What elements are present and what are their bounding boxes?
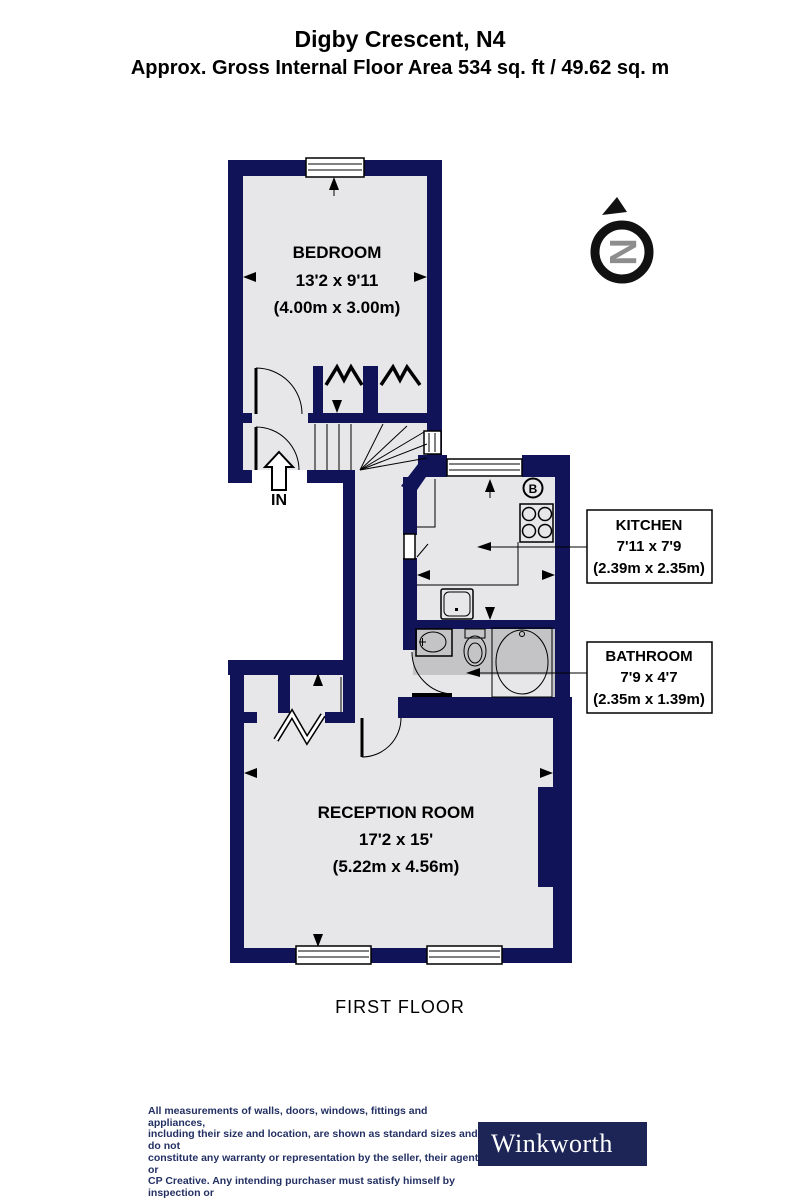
bathroom-name: BATHROOM: [605, 648, 692, 665]
disclaimer-line: including their size and location, are s…: [148, 1129, 483, 1152]
bedroom-name: BEDROOM: [293, 243, 382, 262]
boiler-label: B: [529, 482, 538, 496]
chimney-breast: [538, 787, 572, 887]
floor-plan-drawing: B: [0, 0, 800, 1200]
disclaimer-line: CP Creative. Any intending purchaser mus…: [148, 1176, 483, 1199]
floor-name: FIRST FLOOR: [335, 997, 465, 1017]
disclaimer-line: constitute any warranty or representatio…: [148, 1153, 483, 1176]
bathroom-size-imperial: 7'9 x 4'7: [620, 669, 677, 686]
bedroom-floor: [243, 176, 427, 470]
bathroom-size-metric: (2.35m x 1.39m): [593, 691, 705, 708]
reception-window-right: [427, 946, 502, 964]
north-pointer-icon: [602, 197, 627, 215]
compass-letter: N: [601, 238, 643, 265]
reception-size-imperial: 17'2 x 15': [359, 830, 433, 849]
compass: N: [595, 197, 649, 279]
winkworth-logo: Winkworth: [478, 1122, 647, 1166]
reception-size-metric: (5.22m x 4.56m): [333, 857, 460, 876]
winkworth-logo-text: Winkworth: [478, 1129, 613, 1159]
entrance-label: IN: [271, 492, 287, 509]
bedroom-window: [306, 158, 364, 177]
reception-window-left: [296, 946, 371, 964]
kitchen-window: [447, 459, 522, 476]
bedroom-size-metric: (4.00m x 3.00m): [274, 298, 401, 317]
kitchen-name: KITCHEN: [616, 517, 683, 534]
kitchen-size-imperial: 7'11 x 7'9: [617, 538, 682, 555]
reception-name: RECEPTION ROOM: [318, 803, 475, 822]
disclaimer-line: All measurements of walls, doors, window…: [148, 1106, 483, 1129]
bedroom-size-imperial: 13'2 x 9'11: [296, 271, 379, 290]
kitchen-size-metric: (2.39m x 2.35m): [593, 560, 705, 577]
disclaimer-text: All measurements of walls, doors, window…: [148, 1106, 483, 1200]
stair-window: [424, 431, 441, 454]
floor-plan-page: Digby Crescent, N4 Approx. Gross Interna…: [0, 0, 800, 1200]
